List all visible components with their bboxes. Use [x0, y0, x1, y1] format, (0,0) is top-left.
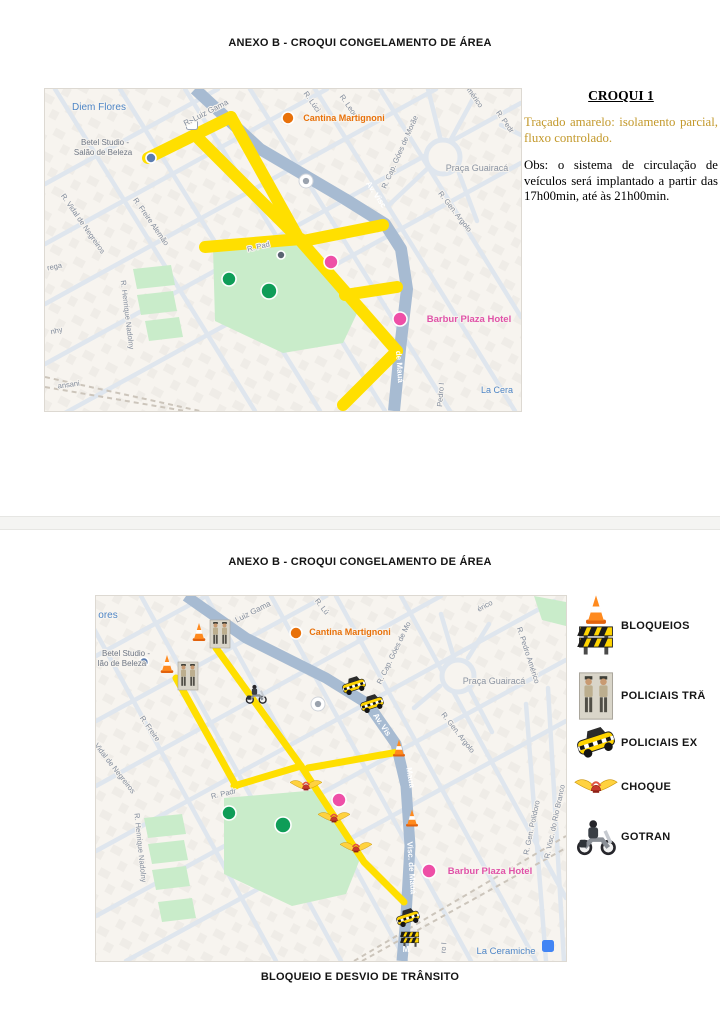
police-officers-icon	[210, 620, 230, 648]
croqui-note-yellow: Traçado amarelo: isolamento parcial, flu…	[524, 115, 718, 147]
poi-marker	[299, 174, 313, 188]
map-label: Praça Guairacá	[463, 676, 526, 686]
legend-label: GOTRAN	[621, 831, 670, 843]
map-label: M	[403, 945, 410, 954]
blockade-icon	[571, 594, 621, 658]
legend-item-policiais-ex: POLICIAIS EX	[571, 724, 720, 762]
map-label: Cantina Martignoni	[303, 113, 385, 123]
map-legend: BLOQUEIOSPOLICIAIS TRÂPOLICIAIS EXCHOQUE…	[571, 594, 720, 860]
legend-label: BLOQUEIOS	[621, 620, 690, 632]
document-page: { "page1": { "title": "ANEXO B - CROQUI …	[0, 0, 720, 1024]
park-area	[158, 898, 196, 922]
legend-label: POLICIAIS TRÂ	[621, 690, 706, 702]
map-label: Salão de Beleza	[74, 148, 133, 157]
map-croqui-2: oresBetel Studio -lão de BelezaLuiz Gama…	[95, 595, 567, 962]
motorcycle-icon	[571, 814, 621, 860]
legend-label: CHOQUE	[621, 781, 671, 793]
poi-marker	[422, 864, 436, 878]
poi-marker	[324, 255, 338, 269]
map-label: Cantina Martignoni	[309, 627, 391, 637]
map-label: Barbur Plaza Hotel	[427, 314, 511, 325]
legend-item-policiais-tr-: POLICIAIS TRÂ	[571, 672, 720, 720]
poi-marker	[275, 817, 291, 833]
park-area	[137, 291, 177, 315]
poi-marker	[222, 272, 236, 286]
yellow-isolation-route	[345, 287, 397, 295]
croqui-note-panel: CROQUI 1 Traçado amarelo: isolamento par…	[524, 88, 718, 205]
poi-marker	[290, 627, 302, 639]
poi-marker	[393, 312, 407, 326]
annex-title-2: ANEXO B - CROQUI CONGELAMENTO DE ÁREA	[0, 556, 720, 568]
map-label: ro I	[439, 942, 449, 954]
bottom-caption: BLOQUEIO E DESVIO DE TRÂNSITO	[0, 971, 720, 983]
map-label: Betel Studio -	[81, 138, 129, 147]
legend-item-gotran: GOTRAN	[571, 814, 720, 860]
page-break	[0, 516, 720, 530]
poi-marker	[282, 112, 294, 124]
police-car-icon	[571, 724, 621, 762]
police-officers-icon	[178, 662, 198, 690]
croqui-note-obs: Obs: o sistema de circulação de veículos…	[524, 158, 718, 206]
poi-marker	[261, 283, 277, 299]
park-area	[144, 814, 186, 838]
poi-marker	[311, 697, 325, 711]
map-label: Praça Guairacá	[446, 163, 509, 173]
croqui-heading: CROQUI 1	[524, 88, 718, 104]
poi-marker	[146, 153, 156, 163]
park-area	[152, 866, 190, 890]
poi-marker	[543, 941, 554, 952]
legend-label: POLICIAIS EX	[621, 737, 697, 749]
annex-title-1: ANEXO B - CROQUI CONGELAMENTO DE ÁREA	[0, 37, 720, 49]
park-area	[148, 840, 188, 864]
map-croqui-1: Diem FloresBetel Studio -Salão de Beleza…	[44, 88, 522, 412]
map-label: La Cera	[481, 385, 513, 395]
map-label: Barbur Plaza Hotel	[448, 866, 532, 877]
map-label: Diem Flores	[72, 102, 126, 113]
poi-marker	[277, 251, 285, 259]
park-area	[133, 265, 175, 289]
park-area	[145, 317, 183, 341]
poi-marker	[222, 806, 236, 820]
map-label: La Ceramiche	[476, 946, 535, 957]
choque-emblem-icon	[571, 768, 621, 806]
poi-marker	[332, 793, 346, 807]
map-label: lão de Beleza	[98, 659, 147, 668]
police-officers-icon	[571, 672, 621, 720]
map-label: Betel Studio -	[102, 649, 150, 658]
map-label: ores	[98, 610, 117, 621]
legend-item-choque: CHOQUE	[571, 768, 720, 806]
legend-item-bloqueios: BLOQUEIOS	[571, 594, 720, 658]
